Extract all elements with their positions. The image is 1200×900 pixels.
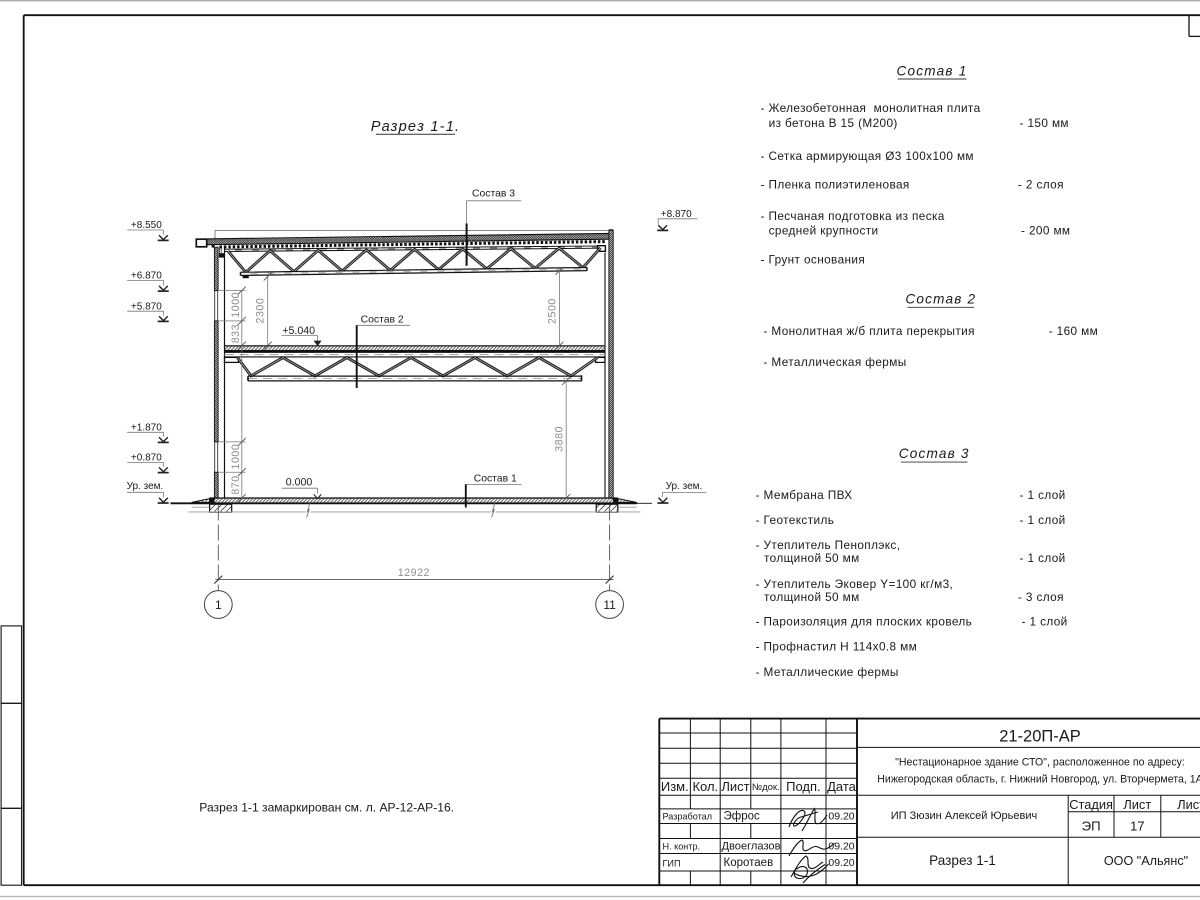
svg-text:- Пароизоляция для плоских кро: - Пароизоляция для плоских кровель: [756, 615, 973, 629]
svg-text:09.20: 09.20: [828, 857, 854, 869]
svg-text:+1.870: +1.870: [131, 423, 162, 434]
svg-text:Состав 2: Состав 2: [361, 314, 404, 325]
svg-text:21-20П-АР: 21-20П-АР: [999, 728, 1081, 746]
svg-text:Состав 1: Состав 1: [897, 63, 968, 78]
svg-text:1000: 1000: [230, 292, 242, 318]
svg-text:- 160 мм: - 160 мм: [1049, 324, 1098, 338]
svg-text:- Сетка армирующая Ø3 100х100: - Сетка армирующая Ø3 100х100 мм: [761, 149, 974, 163]
svg-text:- 2 слоя: - 2 слоя: [1018, 178, 1064, 192]
svg-text:- Профнастил Н 114х0.8 мм: - Профнастил Н 114х0.8 мм: [756, 640, 918, 654]
svg-text:- 1 слой: - 1 слой: [1020, 513, 1066, 527]
svg-text:средней крупности: средней крупности: [769, 224, 879, 238]
svg-text:Ур. зем.: Ур. зем.: [127, 481, 164, 492]
svg-text:Разрез 1-1 замаркирован см. л.: Разрез 1-1 замаркирован см. л. АР-12-АР-…: [199, 801, 454, 815]
svg-text:- Монолитная ж/б плита перекры: - Монолитная ж/б плита перекрытия: [763, 324, 975, 338]
svg-text:Ур. зем.: Ур. зем.: [666, 481, 703, 492]
svg-text:3880: 3880: [553, 426, 565, 452]
svg-text:Состав 2: Состав 2: [905, 292, 976, 307]
svg-text:+8.870: +8.870: [661, 209, 692, 220]
svg-text:Подп.: Подп.: [786, 779, 821, 794]
svg-text:- Утеплитель Эковер Y=100 кг/м: - Утеплитель Эковер Y=100 кг/м3,: [756, 577, 954, 591]
svg-text:12922: 12922: [398, 567, 430, 579]
svg-text:Разрез 1-1: Разрез 1-1: [929, 853, 996, 868]
svg-text:Лист: Лист: [721, 779, 749, 794]
svg-text:толщиной 50 мм: толщиной 50 мм: [764, 590, 860, 604]
svg-text:- 3 слоя: - 3 слоя: [1018, 590, 1064, 604]
svg-text:09.20: 09.20: [828, 840, 854, 852]
svg-text:- 1 слой: - 1 слой: [1020, 488, 1066, 502]
svg-text:- Мембрана ПВХ: - Мембрана ПВХ: [756, 488, 853, 502]
svg-text:2500: 2500: [547, 298, 559, 324]
svg-text:- Грунт основания: - Грунт основания: [761, 253, 866, 267]
svg-text:870: 870: [230, 475, 242, 494]
svg-text:Изм.: Изм.: [661, 779, 689, 794]
svg-text:- Пленка полиэтиленовая: - Пленка полиэтиленовая: [761, 178, 910, 192]
svg-text:ИП Зюзин Алексей Юрьевич: ИП Зюзин Алексей Юрьевич: [891, 810, 1038, 822]
svg-text:2300: 2300: [255, 298, 267, 324]
svg-text:11: 11: [603, 598, 616, 612]
svg-text:толщиной 50 мм: толщиной 50 мм: [764, 551, 860, 565]
svg-text:- Песчаная подготовка из песка: - Песчаная подготовка из песка: [761, 209, 945, 223]
svg-text:- Металлические фермы: - Металлические фермы: [756, 665, 899, 679]
svg-text:+5.040: +5.040: [282, 325, 315, 337]
svg-text:Состав 3: Состав 3: [899, 446, 970, 461]
svg-text:Листов: Листов: [1177, 797, 1200, 812]
svg-text:- 150 мм: - 150 мм: [1020, 116, 1069, 130]
svg-text:ГИП: ГИП: [663, 858, 681, 868]
svg-text:Разрез 1-1.: Разрез 1-1.: [371, 119, 461, 135]
svg-text:+6.870: +6.870: [131, 271, 162, 282]
svg-text:+8.550: +8.550: [131, 220, 162, 231]
svg-text:Разработал: Разработал: [663, 812, 713, 822]
svg-text:"Нестационарное здание СТО", р: "Нестационарное здание СТО", расположенн…: [895, 757, 1185, 769]
svg-text:Стадия: Стадия: [1069, 797, 1113, 812]
svg-text:Эфрос: Эфрос: [724, 810, 761, 822]
svg-text:- Утеплитель Пеноплэкс,: - Утеплитель Пеноплэкс,: [756, 538, 901, 552]
svg-text:из бетона В 15 (М200): из бетона В 15 (М200): [769, 116, 898, 130]
svg-text:Нижегородская область, г. Нижн: Нижегородская область, г. Нижний Новгоро…: [877, 773, 1200, 785]
svg-text:- 1 слой: - 1 слой: [1020, 551, 1066, 565]
svg-text:Двоеглазов: Двоеглазов: [722, 841, 781, 853]
svg-text:- Металлическая фермы: - Металлическая фермы: [763, 355, 906, 369]
svg-text:- Железобетонная монолитная п: - Железобетонная монолитная плита: [761, 101, 981, 115]
svg-text:833: 833: [230, 324, 242, 343]
svg-text:№док.: №док.: [752, 782, 780, 793]
svg-text:Дата: Дата: [827, 779, 857, 794]
svg-text:- Геотекстиль: - Геотекстиль: [756, 513, 835, 527]
svg-text:Коротаев: Коротаев: [724, 857, 774, 869]
svg-text:09.20: 09.20: [828, 810, 854, 822]
svg-text:Н. контр.: Н. контр.: [663, 842, 701, 852]
svg-text:17: 17: [1130, 819, 1145, 834]
svg-text:0.000: 0.000: [286, 476, 313, 488]
svg-text:ЭП: ЭП: [1082, 819, 1101, 834]
svg-text:Состав 1: Состав 1: [474, 473, 517, 484]
svg-text:ООО "Альянс": ООО "Альянс": [1104, 854, 1188, 868]
svg-text:Кол.: Кол.: [692, 779, 718, 794]
svg-text:Лист: Лист: [1123, 797, 1151, 812]
svg-text:+5.870: +5.870: [131, 301, 162, 312]
svg-text:Состав 3: Состав 3: [472, 189, 515, 200]
svg-text:+0.870: +0.870: [131, 453, 162, 464]
svg-text:- 1 слой: - 1 слой: [1022, 615, 1068, 629]
svg-text:1: 1: [215, 598, 222, 612]
svg-text:1000: 1000: [230, 444, 242, 470]
svg-text:- 200 мм: - 200 мм: [1021, 224, 1070, 238]
